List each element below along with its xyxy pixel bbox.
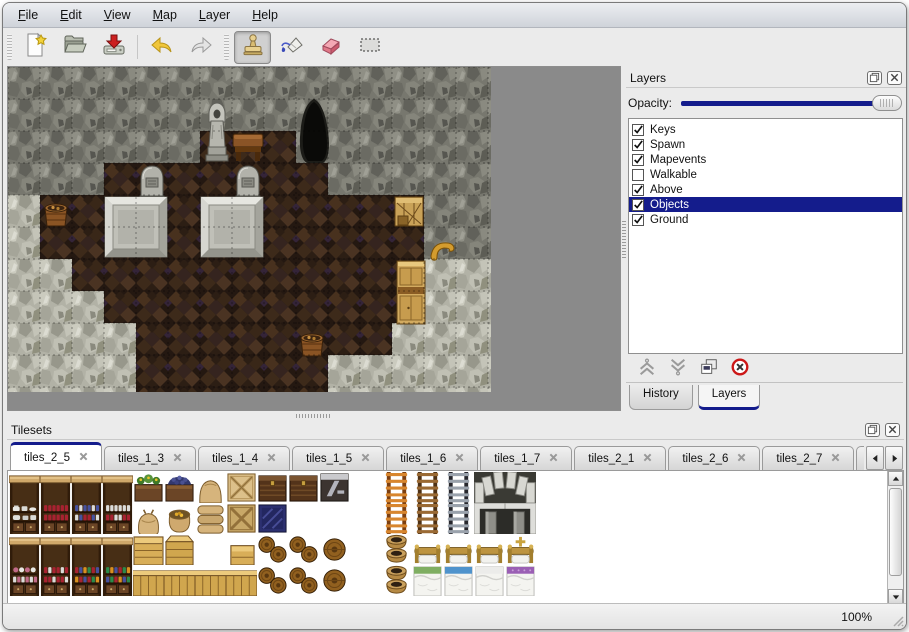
layer-visibility-checkbox[interactable]	[632, 214, 644, 226]
tile-ladder-orange[interactable]	[381, 503, 412, 534]
tileset-tab-tiles[interactable]: tiles_	[856, 446, 864, 470]
layer-list: KeysSpawnMapeventsWalkableAboveObjectsGr…	[628, 118, 903, 354]
tile-arch-left[interactable]	[474, 472, 505, 503]
check-icon	[633, 139, 643, 151]
redo-button[interactable]	[182, 31, 219, 64]
tile-crate-row[interactable]	[226, 565, 257, 596]
tile-bed-head[interactable]	[443, 534, 474, 565]
delete-layer-button[interactable]	[729, 359, 751, 381]
eraser-tool-icon	[318, 32, 344, 63]
scroll-up-button[interactable]	[888, 471, 903, 486]
check-icon	[633, 154, 643, 166]
stamp-tool-button[interactable]	[234, 31, 271, 64]
tab-close-icon[interactable]	[737, 453, 746, 465]
tile-ladder-brown[interactable]	[412, 503, 443, 534]
tile-shelf-dishes[interactable]	[9, 503, 40, 534]
tab-close-icon[interactable]	[79, 452, 88, 464]
tile-barrels2[interactable]	[288, 565, 319, 596]
splitter-grip-icon	[296, 414, 332, 418]
tile-shelf-books[interactable]	[40, 565, 71, 596]
float-icon	[867, 424, 878, 435]
arrow-down-icon	[892, 593, 900, 601]
tile-barrels2[interactable]	[257, 565, 288, 596]
float-panel-button[interactable]	[867, 71, 882, 85]
tile-shelf-jam[interactable]	[9, 565, 40, 596]
toolbar-grip[interactable]	[224, 34, 229, 60]
tile-empty	[350, 503, 381, 534]
layer-actions	[626, 357, 903, 383]
tile-crate-blue[interactable]	[257, 503, 288, 534]
save-button[interactable]	[95, 31, 132, 64]
tile-sack-open[interactable]	[164, 503, 195, 534]
layers-panel-tabs: HistoryLayers	[629, 385, 760, 410]
select-tool-button[interactable]	[351, 31, 388, 64]
check-icon	[633, 199, 643, 211]
scroll-tabs-left-button[interactable]	[866, 446, 884, 470]
tileset-tab-label: tiles_1_7	[494, 453, 540, 465]
tileset-tab-label: tiles_2_7	[776, 453, 822, 465]
layers-panel-title: Layers	[630, 71, 862, 85]
tile-shelf-red[interactable]	[40, 503, 71, 534]
zoom-level: 100%	[841, 610, 872, 624]
tileset-tab-label: tiles_1_6	[400, 453, 446, 465]
layer-row-above[interactable]: Above	[629, 182, 902, 197]
float-panel-button[interactable]	[865, 423, 880, 437]
check-icon	[633, 214, 643, 226]
tile-empty	[319, 503, 350, 534]
layer-visibility-checkbox[interactable]	[632, 139, 644, 151]
tile-shelf-booksm[interactable]	[102, 565, 133, 596]
tileset-tab-tiles_1_7[interactable]: tiles_1_7	[480, 446, 572, 470]
tile-barrels2[interactable]	[288, 534, 319, 565]
menu-item-map[interactable]: Map	[142, 5, 188, 25]
tab-close-icon[interactable]	[643, 453, 652, 465]
opacity-slider[interactable]	[681, 94, 902, 112]
tile-pot-stack[interactable]	[381, 565, 412, 596]
tile-chest[interactable]	[288, 472, 319, 503]
tile-crate-big[interactable]	[133, 534, 164, 565]
tileset-tab-label: tiles_2_5	[24, 452, 70, 464]
scroll-down-button[interactable]	[888, 589, 903, 604]
tile-hearth-right[interactable]	[505, 503, 536, 534]
layer-name: Above	[650, 184, 683, 196]
duplicate-layer-icon	[699, 357, 719, 382]
eraser-tool-button[interactable]	[312, 31, 349, 64]
tileset-tab-tiles_1_4[interactable]: tiles_1_4	[198, 446, 290, 470]
panel-tab-layers[interactable]: Layers	[698, 385, 761, 410]
check-icon	[633, 184, 643, 196]
tileset-tab-label: tiles_2_6	[682, 453, 728, 465]
tileset-tab-label: tiles_1_3	[118, 453, 164, 465]
tile-empty	[195, 534, 226, 565]
tileset-scrollbar[interactable]	[887, 471, 903, 604]
redo-icon	[188, 32, 214, 63]
tile-hearth-left[interactable]	[474, 503, 505, 534]
tile-shelf-jars[interactable]	[102, 503, 133, 534]
tile-bed-head[interactable]	[474, 534, 505, 565]
stamp-tool-icon	[240, 32, 266, 63]
layer-row-mapevents[interactable]: Mapevents	[629, 152, 902, 167]
layer-name: Mapevents	[650, 154, 706, 166]
map-canvas[interactable]	[7, 66, 621, 411]
tile-bed-purple[interactable]	[505, 565, 536, 596]
tile-bed-head[interactable]	[412, 534, 443, 565]
arrow-up-icon	[892, 475, 900, 483]
tile-shelf-top[interactable]	[40, 472, 71, 503]
delete-layer-icon	[730, 357, 750, 382]
opacity-slider-track[interactable]	[681, 101, 900, 106]
tile-crate-row[interactable]	[133, 565, 164, 596]
toolbar	[3, 28, 906, 66]
new-file-icon	[23, 32, 49, 63]
tile-crate-small[interactable]	[226, 534, 257, 565]
undo-icon	[149, 32, 175, 63]
tileset-tab-label: tiles_1_5	[306, 453, 352, 465]
layer-row-objects[interactable]: Objects	[629, 197, 902, 212]
resize-grip-icon[interactable]	[891, 614, 904, 627]
tile-pot-stack[interactable]	[381, 534, 412, 565]
tileset-tab-tiles_1_5[interactable]: tiles_1_5	[292, 446, 384, 470]
layer-name: Ground	[650, 214, 688, 226]
close-icon	[889, 72, 900, 83]
tilesets-panel-titlebar: Tilesets	[7, 420, 904, 440]
tile-bed-blue[interactable]	[443, 565, 474, 596]
menu-item-help[interactable]: Help	[241, 5, 289, 25]
menu-item-layer[interactable]: Layer	[188, 5, 241, 25]
arrow-left-icon	[871, 454, 880, 463]
tileset-grid	[9, 472, 536, 596]
open-button[interactable]	[56, 31, 93, 64]
tile-shelf-top[interactable]	[9, 472, 40, 503]
tilesets-panel: Tilesets tiles_2_5tiles_1_3tiles_1_4tile…	[7, 420, 904, 605]
tileset-tab-label: tiles_2_1	[588, 453, 634, 465]
layer-visibility-checkbox[interactable]	[632, 169, 644, 181]
float-icon	[869, 72, 880, 83]
menu-item-view[interactable]: View	[93, 5, 142, 25]
tile-sack[interactable]	[133, 503, 164, 534]
tile-shelf-top[interactable]	[71, 472, 102, 503]
tab-close-icon[interactable]	[361, 453, 370, 465]
layer-name: Keys	[650, 124, 676, 136]
tile-empty	[350, 472, 381, 503]
tab-close-icon[interactable]	[831, 453, 840, 465]
tile-sack-top[interactable]	[195, 472, 226, 503]
fill-tool-button[interactable]	[273, 31, 310, 64]
tile-shelf-top[interactable]	[102, 472, 133, 503]
tileset-tab-tiles_1_3[interactable]: tiles_1_3	[104, 446, 196, 470]
arrow-right-icon	[890, 454, 899, 463]
splitter-grip-icon	[622, 220, 626, 258]
layer-name: Objects	[650, 199, 689, 211]
tab-close-icon[interactable]	[549, 453, 558, 465]
tileset-tab-tiles_1_6[interactable]: tiles_1_6	[386, 446, 478, 470]
tile-barrels2[interactable]	[257, 534, 288, 565]
status-bar: 100%	[3, 603, 906, 629]
layers-panel: Layers Opacity: KeysSpawnMapeventsWalkab…	[626, 68, 906, 415]
tile-chest[interactable]	[257, 472, 288, 503]
tile-bed-white[interactable]	[474, 565, 505, 596]
tile-ladder-gray[interactable]	[443, 503, 474, 534]
tile-sack-pile[interactable]	[195, 503, 226, 534]
menu-item-file[interactable]: File	[7, 5, 49, 25]
move-layer-down-icon	[668, 357, 688, 382]
save-icon	[101, 32, 127, 63]
close-panel-button[interactable]	[887, 71, 902, 85]
opacity-label: Opacity:	[628, 96, 672, 110]
tile-empty	[288, 503, 319, 534]
open-icon	[62, 32, 88, 63]
layer-row-walkable[interactable]: Walkable	[629, 167, 902, 182]
close-icon	[887, 424, 898, 435]
panel-tab-history[interactable]: History	[629, 385, 693, 410]
undo-button[interactable]	[143, 31, 180, 64]
layer-name: Walkable	[650, 169, 697, 181]
tile-shelf-top[interactable]	[9, 534, 40, 565]
move-layer-down-button[interactable]	[667, 359, 689, 381]
tile-bed-green[interactable]	[412, 565, 443, 596]
tile-crate-x2[interactable]	[226, 503, 257, 534]
tab-close-icon[interactable]	[455, 453, 464, 465]
tab-scroll-buttons	[865, 446, 903, 470]
tileset-tab-tiles_2_6[interactable]: tiles_2_6	[668, 446, 760, 470]
layer-name: Spawn	[650, 139, 685, 151]
layer-row-spawn[interactable]: Spawn	[629, 137, 902, 152]
layers-panel-titlebar: Layers	[626, 68, 906, 88]
tile-arch-right[interactable]	[505, 472, 536, 503]
toolbar-separator	[137, 35, 138, 59]
opacity-slider-handle[interactable]	[872, 95, 902, 111]
tile-ladder-brown[interactable]	[412, 472, 443, 503]
tile-ladder-gray[interactable]	[443, 472, 474, 503]
layer-row-keys[interactable]: Keys	[629, 122, 902, 137]
tile-shelf-top[interactable]	[102, 534, 133, 565]
layer-visibility-checkbox[interactable]	[632, 124, 644, 136]
tileset-content	[7, 470, 904, 605]
tile-shelf-blue[interactable]	[71, 503, 102, 534]
tile-empty	[350, 565, 381, 596]
tileset-tab-bar: tiles_2_5tiles_1_3tiles_1_4tiles_1_5tile…	[10, 442, 864, 470]
tab-close-icon[interactable]	[173, 453, 182, 465]
tab-close-icon[interactable]	[267, 453, 276, 465]
toolbar-grip[interactable]	[7, 34, 12, 60]
tile-grape-box[interactable]	[164, 472, 195, 503]
tile-barrel[interactable]	[319, 534, 350, 565]
tile-crate-row[interactable]	[164, 565, 195, 596]
check-icon	[633, 124, 643, 136]
tile-crate-lid[interactable]	[164, 534, 195, 565]
tile-shelf-top[interactable]	[71, 534, 102, 565]
move-layer-up-button[interactable]	[636, 359, 658, 381]
scroll-tabs-right-button[interactable]	[885, 446, 903, 470]
tile-crate-row[interactable]	[195, 565, 226, 596]
menu-bar: FileEditViewMapLayerHelp	[3, 3, 906, 28]
tilesets-panel-title: Tilesets	[11, 423, 860, 437]
opacity-row: Opacity:	[628, 92, 902, 114]
layer-visibility-checkbox[interactable]	[632, 154, 644, 166]
layer-visibility-checkbox[interactable]	[632, 199, 644, 211]
map-render	[8, 67, 491, 392]
tile-empty	[350, 534, 381, 565]
tileset-tab-label: tiles_1_4	[212, 453, 258, 465]
layer-row-ground[interactable]: Ground	[629, 212, 902, 227]
tileset-tab-tiles_2_7[interactable]: tiles_2_7	[762, 446, 854, 470]
fill-tool-icon	[279, 32, 305, 63]
horizontal-splitter[interactable]	[7, 411, 621, 420]
new-file-button[interactable]	[17, 31, 54, 64]
close-panel-button[interactable]	[885, 423, 900, 437]
app-window: FileEditViewMapLayerHelp	[2, 2, 907, 630]
tile-flower-box[interactable]	[133, 472, 164, 503]
menu-item-edit[interactable]: Edit	[49, 5, 93, 25]
layer-visibility-checkbox[interactable]	[632, 184, 644, 196]
tile-ladder-orange[interactable]	[381, 472, 412, 503]
tileset-tab-tiles_2_1[interactable]: tiles_2_1	[574, 446, 666, 470]
tile-barrel[interactable]	[319, 565, 350, 596]
move-layer-up-icon	[637, 357, 657, 382]
tile-bed-head-x[interactable]	[505, 534, 536, 565]
duplicate-layer-button[interactable]	[698, 359, 720, 381]
select-tool-icon	[357, 32, 383, 63]
tileset-tab-tiles_2_5[interactable]: tiles_2_5	[10, 442, 102, 470]
tile-shelf-top[interactable]	[40, 534, 71, 565]
tile-shelf-bottles[interactable]	[71, 565, 102, 596]
tile-crate-x[interactable]	[226, 472, 257, 503]
scrollbar-thumb[interactable]	[889, 488, 902, 576]
tile-chest-z[interactable]	[319, 472, 350, 503]
